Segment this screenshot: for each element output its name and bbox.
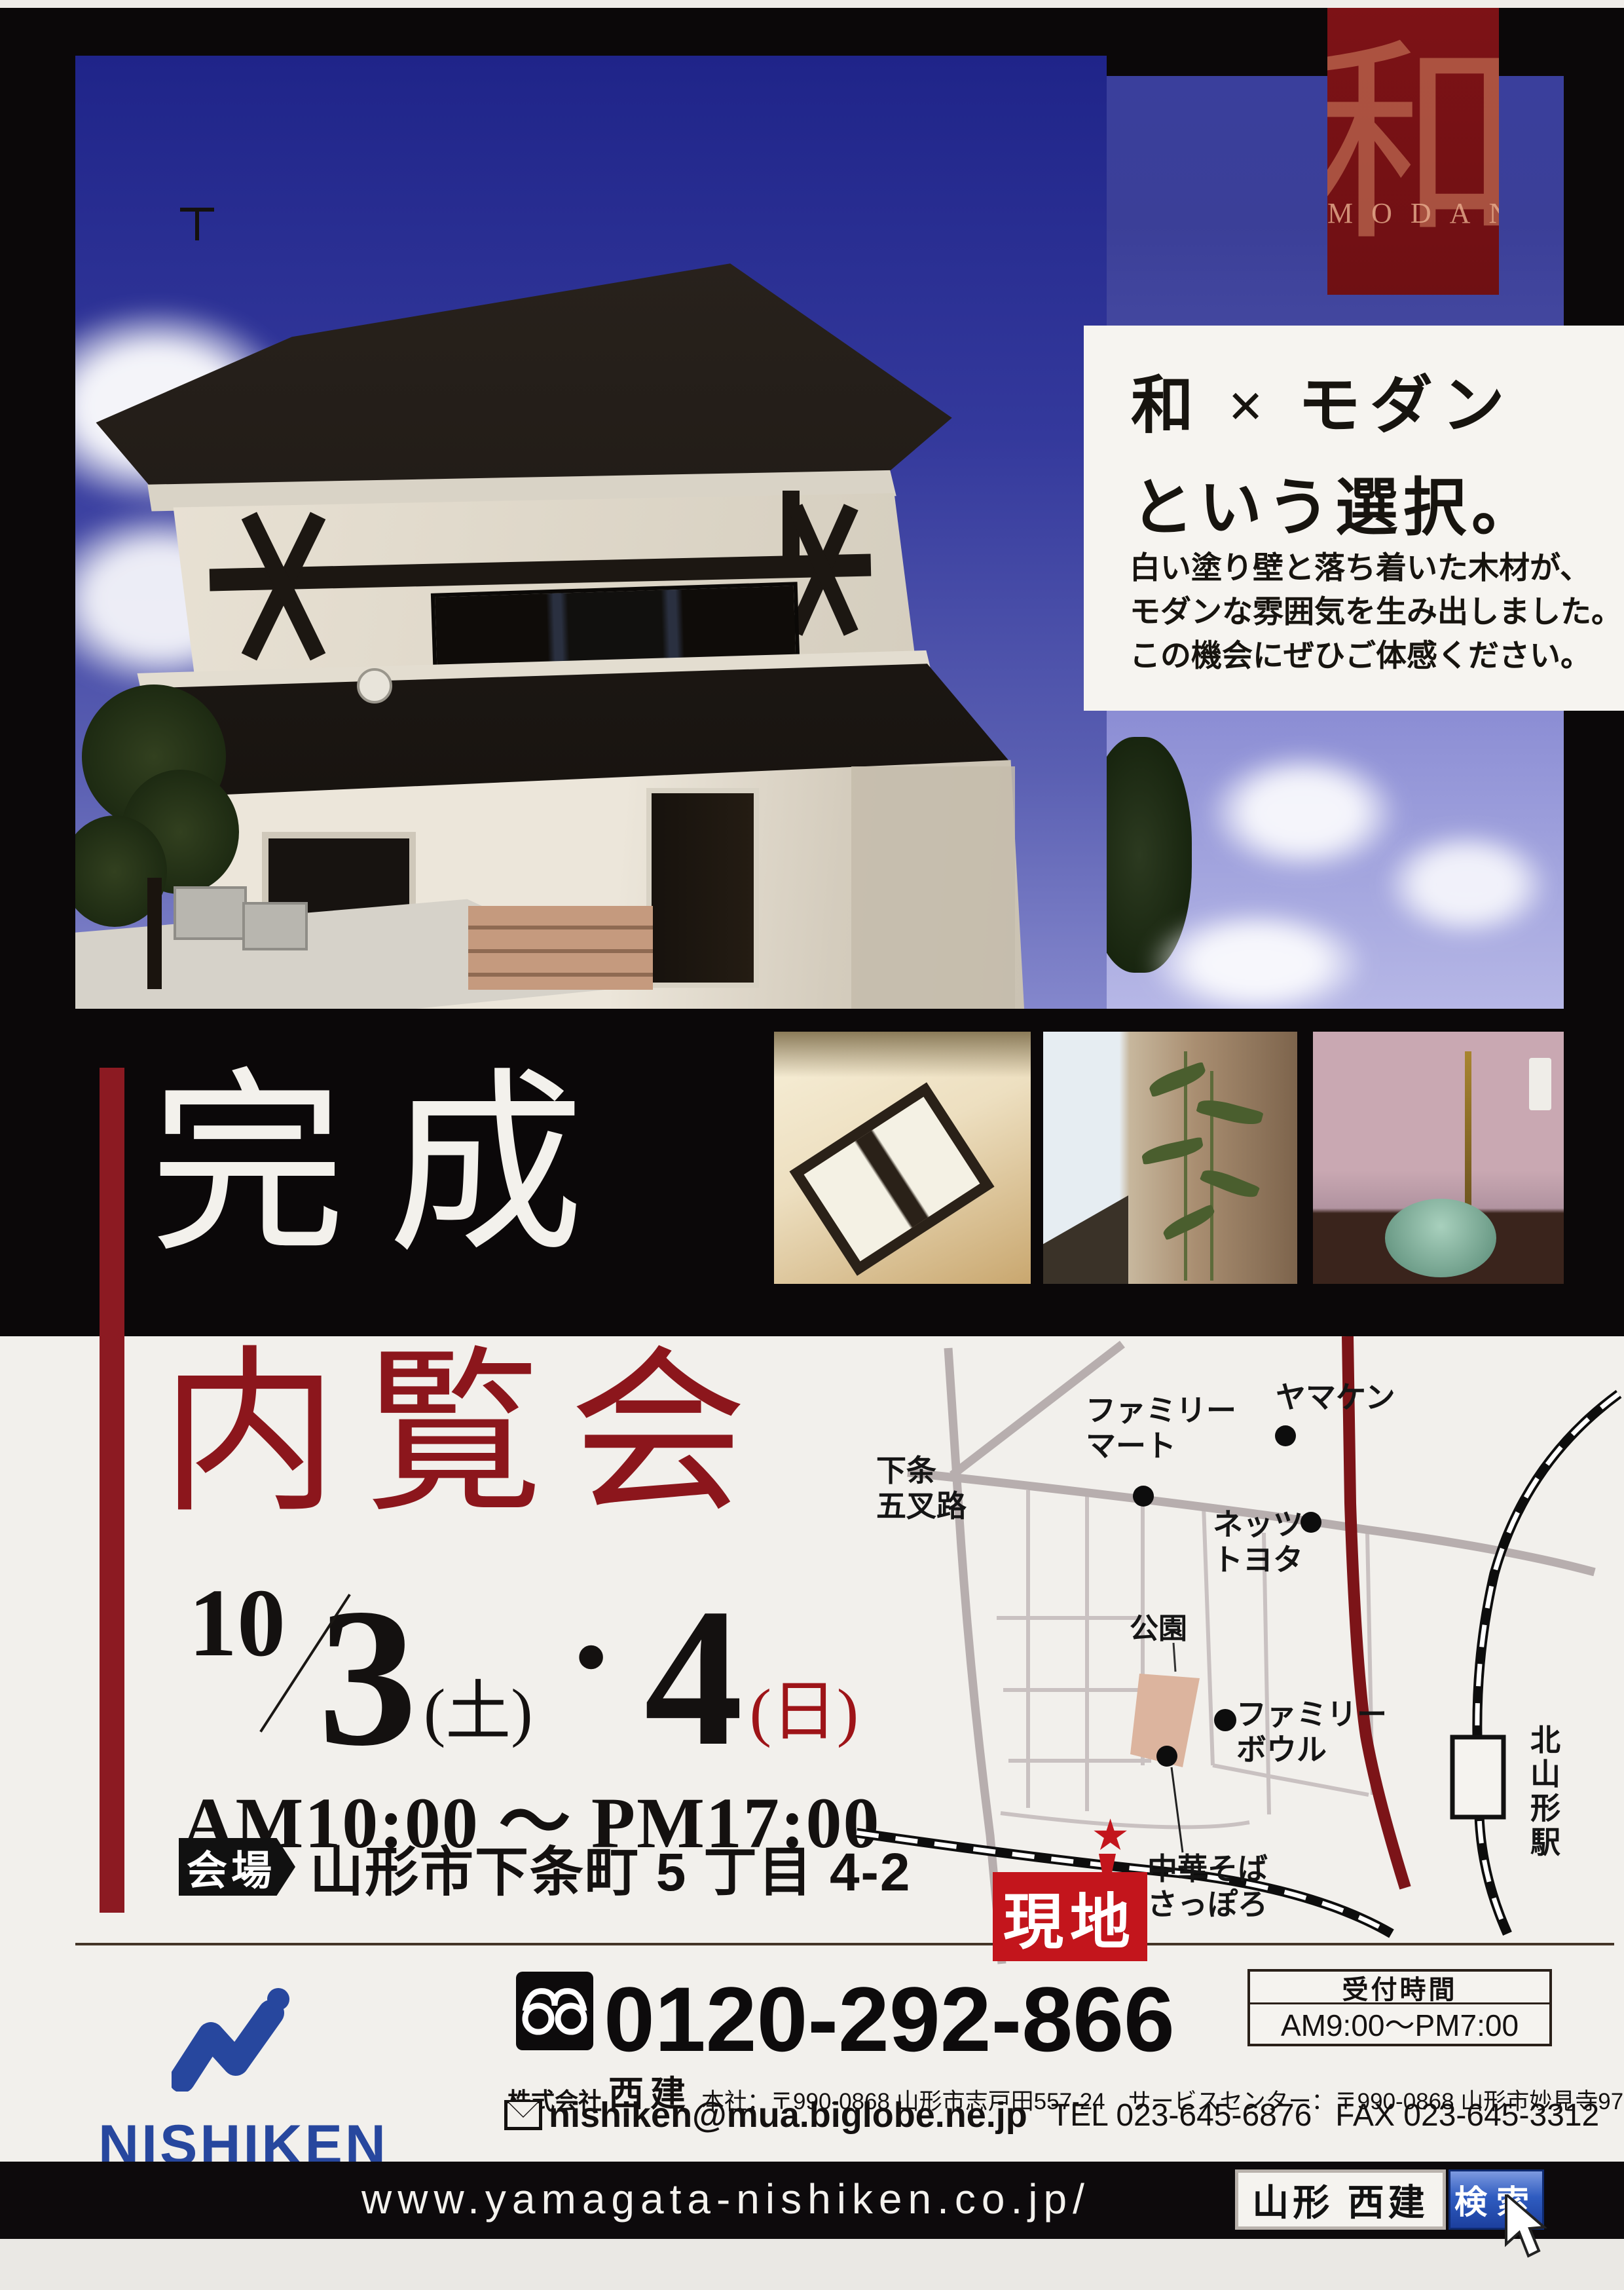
- cloud-shape: [1146, 907, 1369, 1009]
- venue-badge: 会場: [179, 1838, 295, 1896]
- antenna: [195, 210, 199, 240]
- modan-badge: 和 MODAN: [1327, 8, 1499, 295]
- park-pointer-line: [1173, 1643, 1175, 1672]
- interior-photo-basin: [1313, 1032, 1564, 1284]
- brass-fixture: [1465, 1051, 1471, 1209]
- email-tel-fax-line: nishiken@mua.biglobe.ne.jp TEL 023-645-6…: [504, 2095, 1599, 2135]
- venue-row: 会場 山形市下条町 5 丁目 4-2: [179, 1838, 911, 1896]
- date-separator: ・: [542, 1613, 640, 1711]
- map-label-kajo: 下条五叉路: [876, 1453, 967, 1524]
- bamboo-leaf: [1160, 1204, 1217, 1241]
- website-url: www.yamagata-nishiken.co.jp/: [361, 2175, 1090, 2223]
- nishiken-logo-mark: [172, 1988, 293, 2092]
- hero-desc-line3: この機会にぜひご体感ください。: [1130, 635, 1622, 679]
- entrance-door: [646, 788, 759, 988]
- shadow: [774, 1032, 1031, 1078]
- ceramic-bowl: [1385, 1199, 1496, 1277]
- map-label-familymart: ファミリーマート: [1086, 1393, 1236, 1463]
- search-input[interactable]: 山形 西建: [1235, 2169, 1446, 2230]
- hours-value: AM9:00～PM7:00: [1250, 2004, 1549, 2042]
- house-exterior-photo: [75, 56, 1107, 1009]
- brick-steps: [468, 906, 653, 990]
- mail-icon: [504, 2100, 542, 2130]
- freedial-phone-icon: [516, 1972, 593, 2050]
- email-address: nishiken@mua.biglobe.ne.jp: [549, 2095, 1027, 2135]
- sky-photo: [1107, 711, 1564, 1009]
- date-day1: 3: [318, 1607, 417, 1749]
- date-month: 10: [189, 1575, 286, 1672]
- wall-outlet: [1529, 1058, 1551, 1110]
- cloud-shape: [1205, 750, 1401, 874]
- map-label-familybowl: ファミリーボウル: [1236, 1697, 1387, 1767]
- hours-label: 受付時間: [1250, 1972, 1549, 2004]
- tree-trunk: [147, 878, 162, 989]
- tel-number: TEL 023-645-6876: [1051, 2097, 1312, 2133]
- cursor-icon: [1504, 2194, 1559, 2260]
- red-road: [1348, 1336, 1405, 1888]
- hero-desc-line2: モダンな雰囲気を生み出しました。: [1130, 591, 1622, 635]
- bamboo-leaf: [1200, 1165, 1260, 1202]
- map-label-chuka-soba: 中華そばさっぽろ: [1147, 1851, 1268, 1922]
- freedial-number: 0120-292-866: [604, 1966, 1175, 2073]
- nairankai-heading: 内覧会: [160, 1344, 773, 1522]
- cloud-shape: [1382, 829, 1552, 940]
- interior-photo-ceiling: [774, 1032, 1031, 1284]
- minor-roads: [997, 1490, 1373, 1827]
- modan-label: MODAN: [1327, 197, 1499, 230]
- hero-title-line1: 和 × モダン: [1131, 354, 1514, 445]
- hero-desc-line1: 白い塗り壁と落ち着いた木材が、: [1130, 547, 1622, 591]
- interior-photo-plant: [1043, 1032, 1297, 1284]
- hero-text-panel: 和 × モダン という選択。 白い塗り壁と落ち着いた木材が、 モダンな雰囲気を生…: [1084, 326, 1624, 711]
- red-vertical-bar: [100, 1068, 124, 1913]
- date-day2: 4: [644, 1607, 743, 1749]
- entrance-pillar: [851, 766, 1015, 1009]
- map-label-netz-toyota: ネッツトヨタ: [1213, 1507, 1303, 1577]
- map-label-yamaken: ヤマケン: [1276, 1380, 1395, 1415]
- map-label-kitayamagata-station: 北山形駅: [1526, 1724, 1561, 1855]
- bottom-edge-strip: [0, 2239, 1624, 2290]
- kansei-heading: 完成: [149, 1066, 626, 1263]
- scan-edge-strip: [0, 0, 1624, 8]
- chuka-pointer-line: [1172, 1767, 1183, 1852]
- reception-hours-box: 受付時間 AM9:00～PM7:00: [1247, 1969, 1552, 2046]
- bamboo-leaf: [1147, 1061, 1208, 1097]
- satellite-dish: [357, 668, 392, 704]
- event-date-row: 10 3 (土) ・ 4 (日): [189, 1571, 858, 1749]
- bamboo-leaf: [1141, 1136, 1205, 1165]
- hero-title-line2: という選択。: [1131, 457, 1540, 548]
- genchi-site-badge: 現地: [993, 1872, 1147, 1961]
- date-day1-weekday: (土): [424, 1680, 533, 1745]
- window-sill: [1043, 1195, 1128, 1284]
- map-label-park: 公園: [1130, 1611, 1187, 1647]
- site-star-icon: ★: [1091, 1813, 1130, 1856]
- station-rect: [1452, 1737, 1504, 1817]
- fax-number: FAX 023-645-3312: [1335, 2097, 1599, 2133]
- bamboo-leaf: [1196, 1096, 1263, 1129]
- slanted-window: [789, 1082, 994, 1276]
- ac-unit: [242, 902, 308, 950]
- ac-unit: [174, 886, 247, 940]
